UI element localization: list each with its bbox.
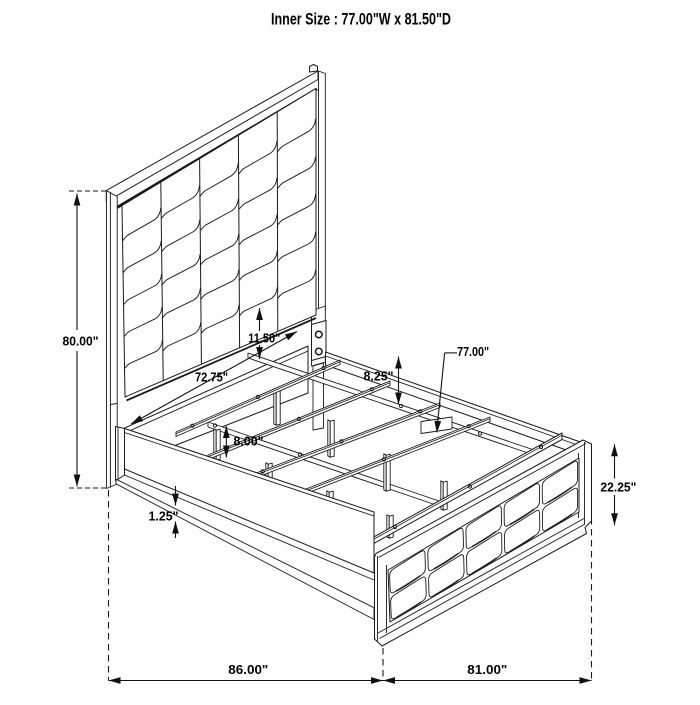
svg-text:81.00": 81.00" — [467, 662, 507, 677]
svg-text:Inner Size : 77.00"W x 81.50"D: Inner Size : 77.00"W x 81.50"D — [271, 11, 451, 29]
svg-text:22.25": 22.25" — [600, 480, 636, 495]
svg-text:86.00": 86.00" — [228, 662, 268, 677]
svg-text:1.25": 1.25" — [149, 509, 179, 524]
svg-text:80.00": 80.00" — [63, 334, 99, 349]
svg-text:11.50": 11.50" — [248, 331, 280, 346]
svg-text:72.75": 72.75" — [195, 370, 228, 385]
svg-text:77.00": 77.00" — [457, 344, 489, 359]
svg-text:8.25": 8.25" — [364, 369, 394, 384]
svg-text:8.00": 8.00" — [234, 434, 264, 449]
